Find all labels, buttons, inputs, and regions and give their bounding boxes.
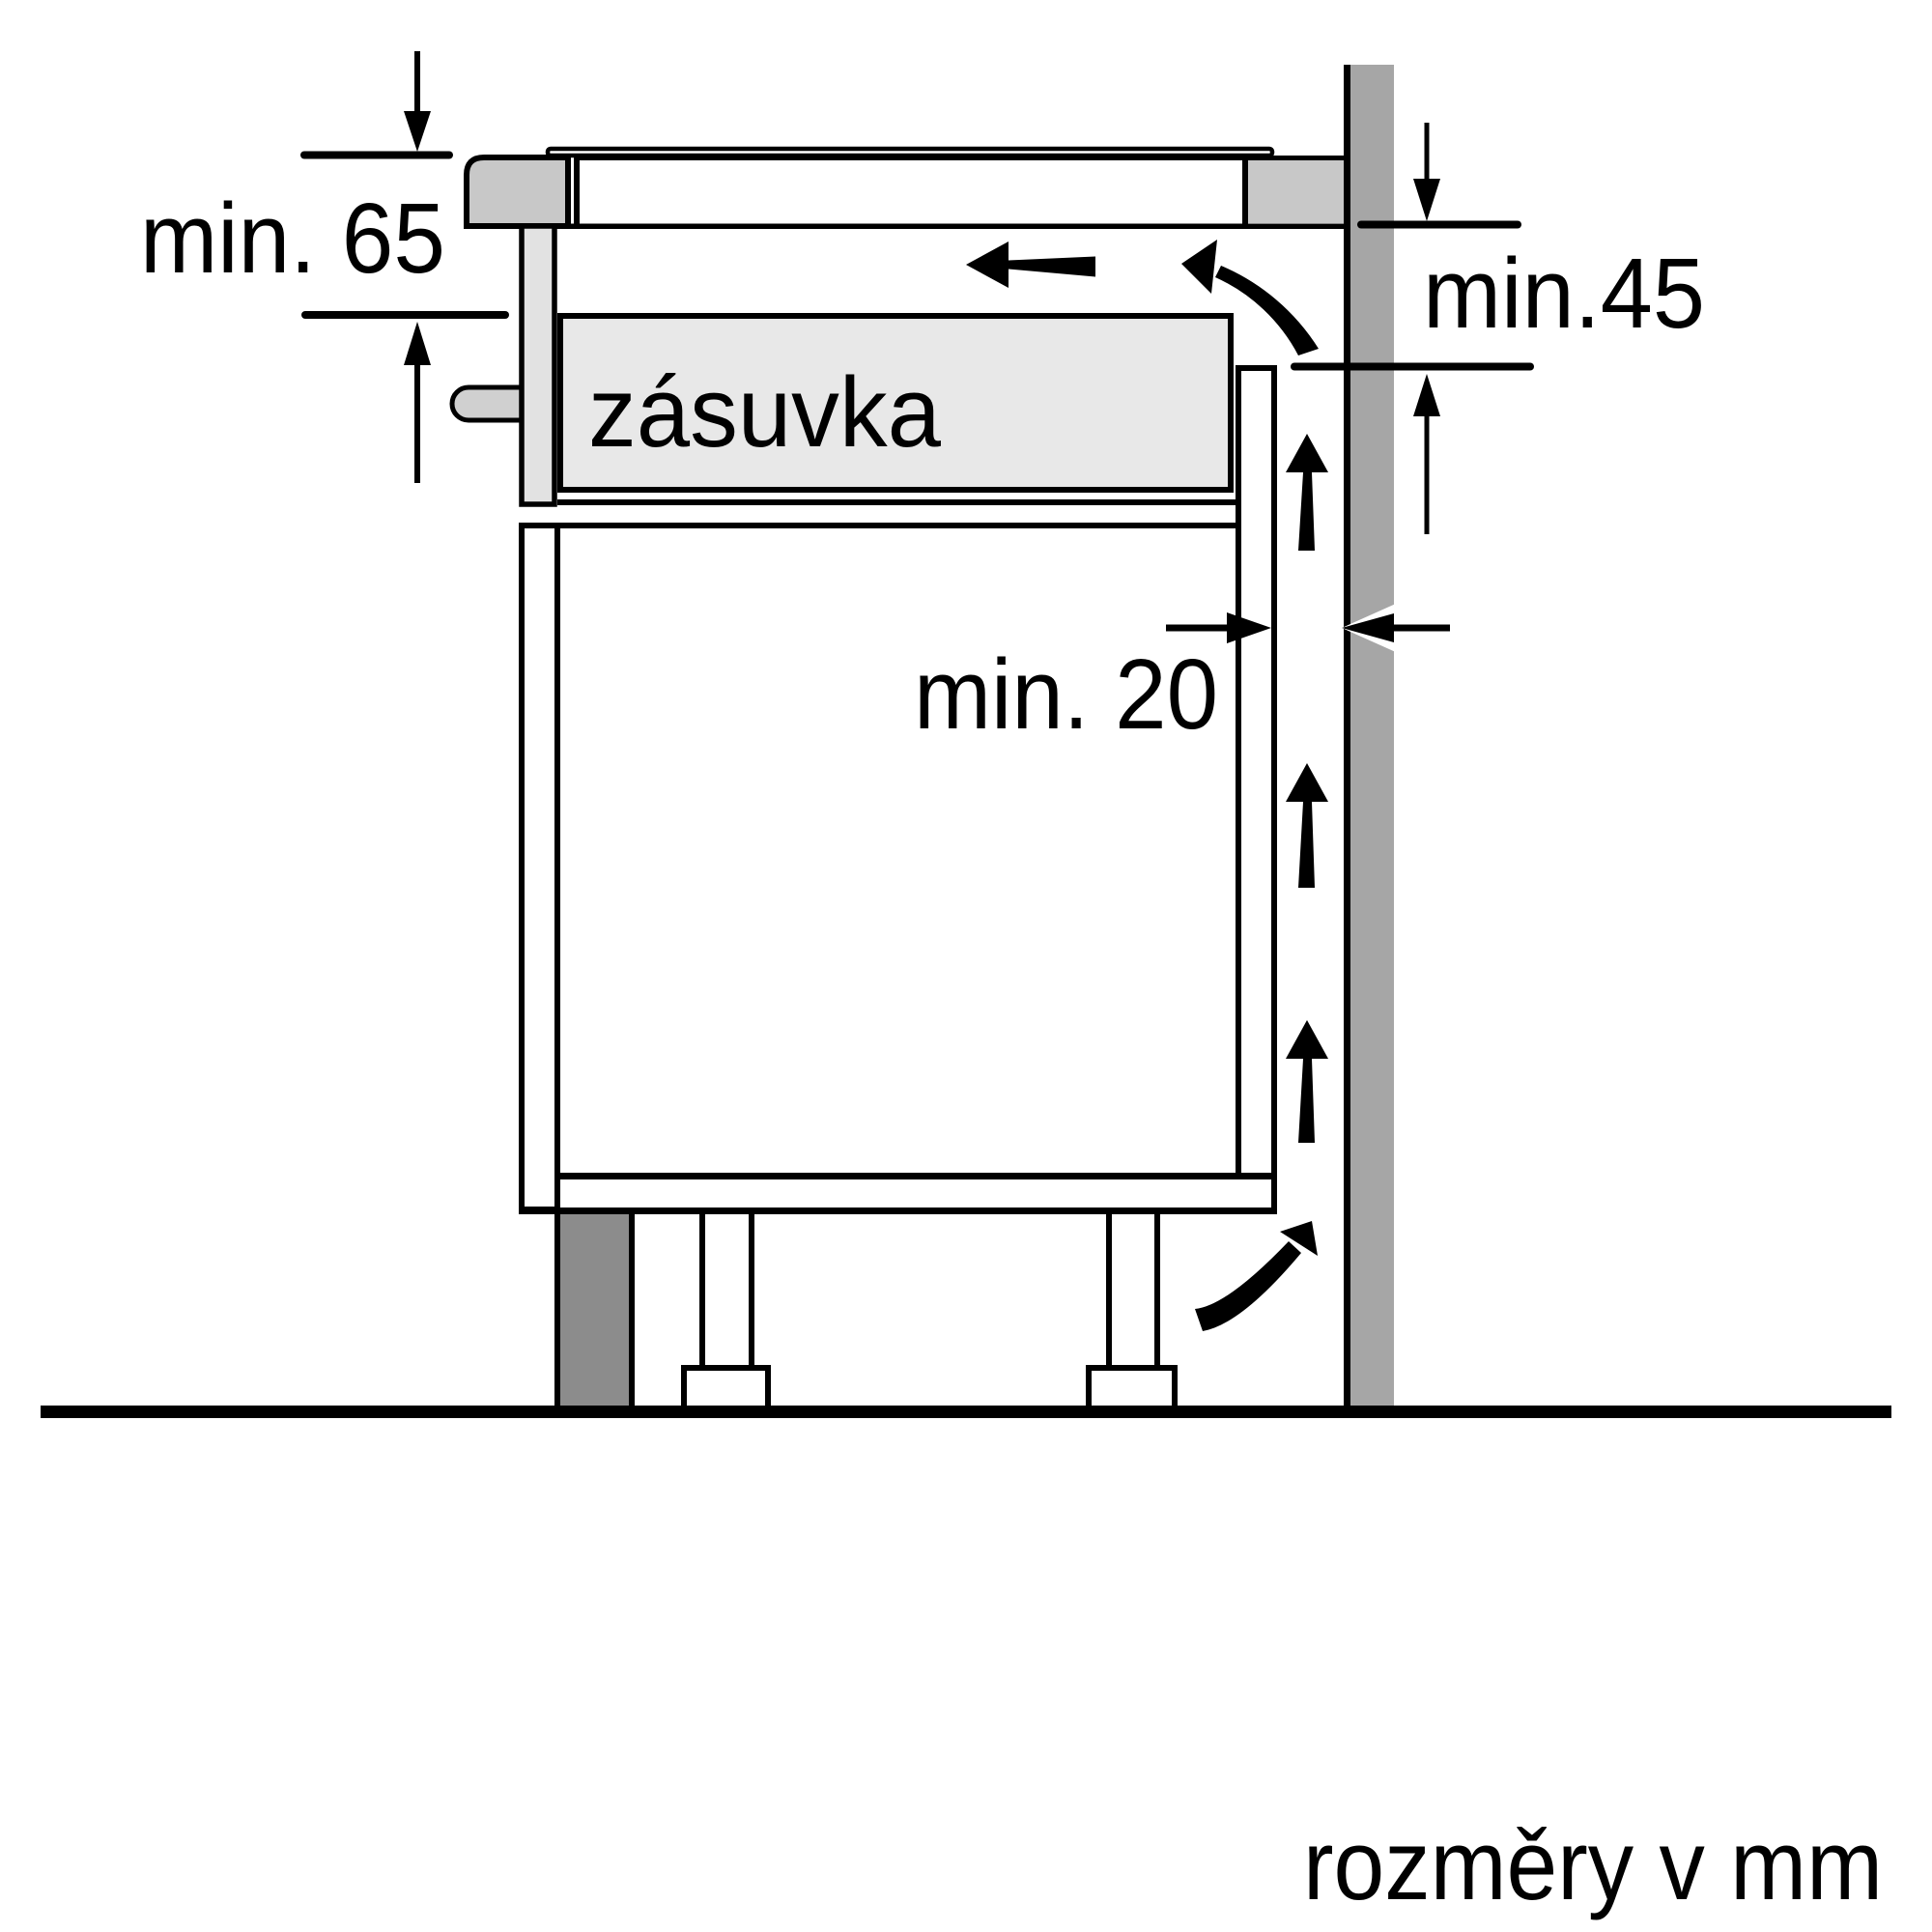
svg-text:min. 20: min. 20 bbox=[914, 639, 1218, 750]
svg-text:min. 65: min. 65 bbox=[140, 183, 445, 294]
svg-text:min.45: min.45 bbox=[1423, 238, 1705, 349]
svg-text:zásuvka: zásuvka bbox=[588, 356, 942, 468]
svg-text:rozměry v mm: rozměry v mm bbox=[1303, 1809, 1883, 1920]
